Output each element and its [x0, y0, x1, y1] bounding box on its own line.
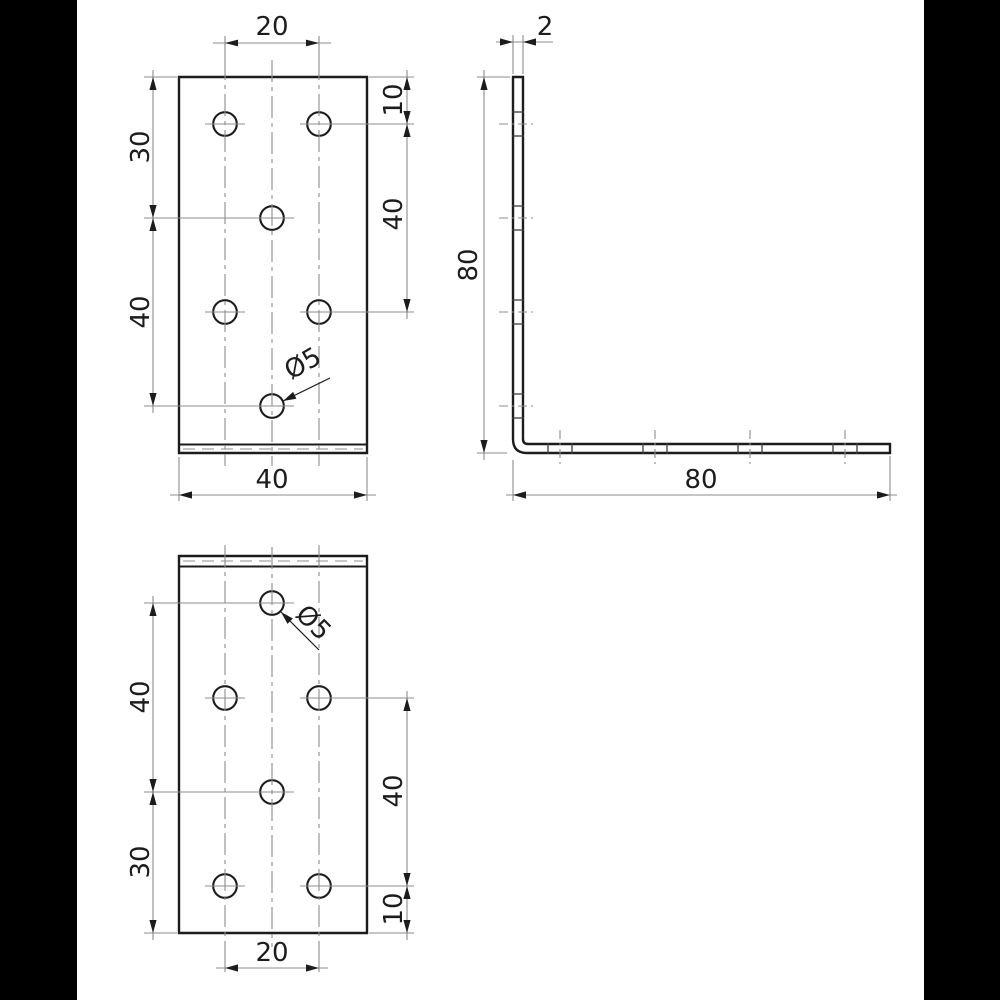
dim-label-left-lower: 40 [126, 295, 156, 328]
dim-arrow [149, 393, 156, 406]
view-flange-top: 20 30 40 10 40 40 Ø5 [126, 12, 414, 501]
dim-label-right-upper: 40 [379, 774, 409, 807]
dim-label-bottom: 20 [255, 938, 288, 968]
dim-arrow [480, 77, 487, 90]
dim-label-length: 80 [684, 465, 717, 495]
dim-label-right-lower: 10 [379, 892, 409, 925]
dim-arrow [306, 40, 319, 47]
dim-arrow [149, 920, 156, 933]
dim-arrow [149, 603, 156, 616]
technical-drawing: 20 30 40 10 40 40 Ø5 [0, 0, 1000, 1000]
dim-label-left-upper: 30 [126, 130, 156, 163]
dim-arrow [225, 40, 238, 47]
view-flange-bottom: 40 30 40 10 20 Ø5 [126, 545, 414, 972]
dim-arrow [149, 218, 156, 231]
dim-label-right-lower: 40 [379, 197, 409, 230]
profile-outline [513, 77, 890, 453]
dim-arrow [403, 124, 410, 137]
dim-label-top: 20 [255, 12, 288, 42]
dim-arrow [403, 873, 410, 886]
dim-arrow [354, 491, 367, 498]
dim-arrow [523, 38, 536, 45]
dim-label-right-upper: 10 [379, 83, 409, 116]
dim-arrow [403, 299, 410, 312]
dim-arrow [149, 77, 156, 90]
dim-arrow [149, 779, 156, 792]
dim-arrow [149, 205, 156, 218]
dim-label-height: 80 [454, 248, 484, 281]
dim-arrow [306, 964, 319, 971]
dim-arrow [877, 491, 890, 498]
dim-arrow [403, 698, 410, 711]
view-side-profile: 2 80 80 [454, 12, 897, 501]
dim-arrow [500, 38, 513, 45]
letterbox-right [924, 0, 1000, 1000]
dim-label-left-lower: 30 [126, 845, 156, 878]
letterbox-left [0, 0, 77, 1000]
dim-label-thickness: 2 [537, 12, 554, 42]
dim-label-left-upper: 40 [126, 680, 156, 713]
dim-arrow [480, 440, 487, 453]
dim-arrow [149, 792, 156, 805]
dim-arrow [179, 491, 192, 498]
dim-arrow [225, 964, 238, 971]
dim-label-bottom: 40 [255, 465, 288, 495]
dim-arrow [513, 491, 526, 498]
screenshot: 20 30 40 10 40 40 Ø5 [0, 0, 1000, 1000]
